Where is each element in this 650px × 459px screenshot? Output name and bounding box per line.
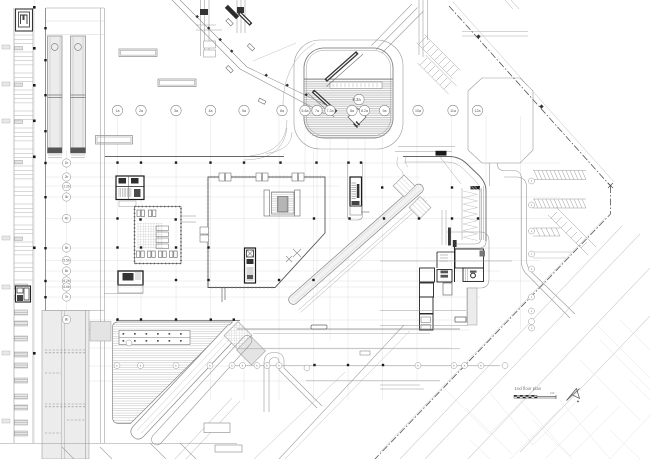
svg-text:1nd floor plan: 1nd floor plan	[515, 386, 542, 391]
svg-text:2.2b: 2.2b	[63, 185, 69, 189]
svg-text:8.2a: 8.2a	[361, 109, 368, 113]
svg-text:7a: 7a	[315, 109, 319, 113]
svg-text:7b: 7b	[65, 295, 69, 299]
svg-text:3b: 3b	[65, 195, 69, 199]
svg-text:8b: 8b	[65, 318, 69, 322]
svg-text:11a: 11a	[450, 109, 456, 113]
svg-text:6b: 6b	[65, 269, 69, 273]
svg-text:9a: 9a	[383, 109, 387, 113]
svg-text:6.6a: 6.6a	[302, 109, 309, 113]
svg-text:4a: 4a	[209, 109, 213, 113]
svg-text:2a: 2a	[139, 109, 143, 113]
svg-text:12a: 12a	[475, 109, 481, 113]
svg-text:5b: 5b	[65, 246, 69, 250]
svg-text:1a: 1a	[116, 109, 120, 113]
svg-text:4b: 4b	[65, 217, 69, 221]
svg-text:5a: 5a	[242, 109, 246, 113]
svg-text:10a: 10a	[415, 109, 421, 113]
svg-text:6a: 6a	[280, 109, 284, 113]
svg-text:6.6b: 6.6b	[63, 285, 69, 289]
svg-text:3a: 3a	[174, 109, 178, 113]
svg-text:5.5b: 5.5b	[63, 259, 69, 263]
svg-text:8a: 8a	[350, 109, 354, 113]
svg-text:2b: 2b	[65, 175, 69, 179]
svg-text:8.3a: 8.3a	[353, 97, 362, 102]
svg-text:100: 100	[550, 391, 555, 395]
svg-text:7.2a: 7.2a	[327, 109, 334, 113]
svg-text:1b: 1b	[65, 161, 69, 165]
